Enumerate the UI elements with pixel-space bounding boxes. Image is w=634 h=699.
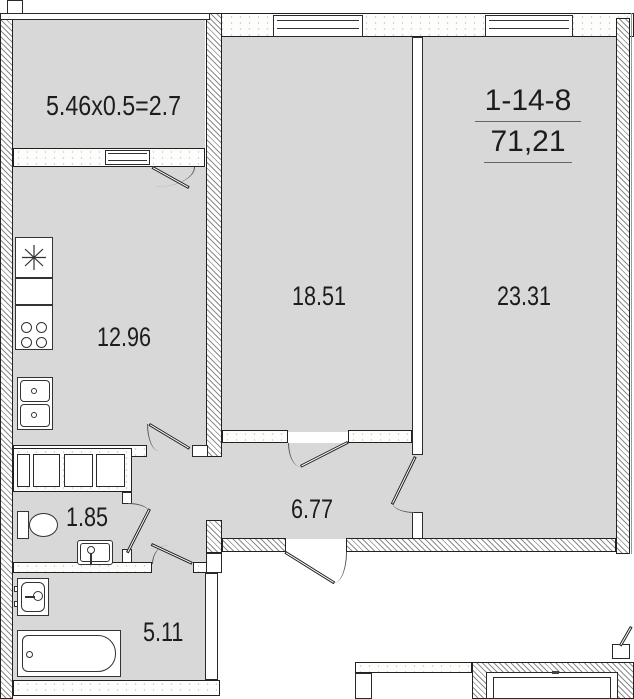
kitchen-sink-drain-1 — [31, 388, 37, 394]
bedroom-door-stub — [412, 512, 423, 540]
right-edge-line — [631, 13, 632, 554]
entrance-wall-left — [222, 538, 286, 552]
bedroom-area-label: 23.31 — [497, 283, 551, 310]
closet-section-1 — [17, 454, 30, 487]
right-exterior-wall — [616, 18, 630, 554]
vent-shaft-box — [15, 237, 53, 278]
bath-sink-stem — [25, 596, 35, 598]
entrance-door-leaf — [284, 551, 335, 584]
balcony-area-label: 5.46x0.5=2.7 — [46, 92, 181, 120]
left-exterior-wall — [0, 13, 13, 699]
kitchen-counter — [15, 278, 53, 305]
toilet-bowl — [29, 513, 58, 537]
living-area-label: 18.51 — [292, 283, 346, 310]
living-room-floor — [222, 37, 412, 432]
living-room-window-glass — [277, 20, 359, 29]
floor-plan: 5.46x0.5=2.7 12.96 18.51 23.31 1.85 6.77… — [0, 0, 634, 699]
unit-title-block: 1-14-8 71,21 — [448, 86, 608, 163]
bathroom-area-label: 5.11 — [143, 619, 183, 646]
stove-burner-2 — [36, 322, 47, 333]
unit-number: 1-14-8 — [475, 86, 582, 122]
wc-sink-stem — [90, 553, 92, 565]
stove-burner-1 — [21, 322, 32, 333]
toilet-tank — [17, 511, 29, 539]
balcony-pier — [7, 0, 23, 14]
neighbor-window-frame — [493, 677, 611, 699]
bathtub-inner — [22, 635, 116, 672]
balcony-floor — [13, 20, 205, 148]
kitchen-door-stub — [192, 445, 208, 457]
stove-burner-3 — [21, 337, 32, 348]
wc-area-label: 1.85 — [66, 504, 108, 531]
closet-section-4 — [96, 454, 125, 487]
hall-area-label: 6.77 — [291, 496, 333, 523]
bathtub-drain — [26, 651, 33, 658]
hall-top-wall-left — [222, 430, 288, 443]
neighbor-window-tick — [552, 671, 559, 674]
entrance-wall-right — [346, 538, 616, 552]
bedroom-window-glass — [489, 20, 569, 29]
wc-sink-basin — [80, 543, 110, 562]
hallway-floor — [222, 443, 423, 539]
kitchen-window-glass — [108, 153, 147, 161]
hall-corner-infill — [206, 553, 222, 573]
unit-total-area: 71,21 — [484, 127, 571, 163]
closet-section-2 — [33, 454, 60, 487]
kitchen-living-wall — [206, 13, 222, 457]
vent-asterisk-icon — [16, 238, 52, 277]
living-bedroom-partition — [412, 37, 423, 455]
bathroom-right-wall — [205, 573, 218, 680]
balcony-glazing-band — [0, 13, 210, 20]
bathroom-bottom-wall — [13, 680, 220, 696]
hall-top-wall-right — [348, 430, 412, 443]
closet-section-3 — [64, 454, 93, 487]
entrance-door-arc — [334, 552, 347, 583]
bath-sink-tab-1 — [14, 586, 18, 592]
kitchen-area-label: 12.96 — [97, 324, 151, 351]
stove-burner-4 — [36, 337, 47, 348]
hall-corner-wall — [206, 520, 222, 553]
bath-sink-tab-2 — [14, 601, 18, 607]
neighbor-corridor-wall — [355, 662, 472, 673]
kitchen-sink-drain-2 — [31, 412, 37, 418]
neighbor-corner-stub — [355, 673, 372, 699]
